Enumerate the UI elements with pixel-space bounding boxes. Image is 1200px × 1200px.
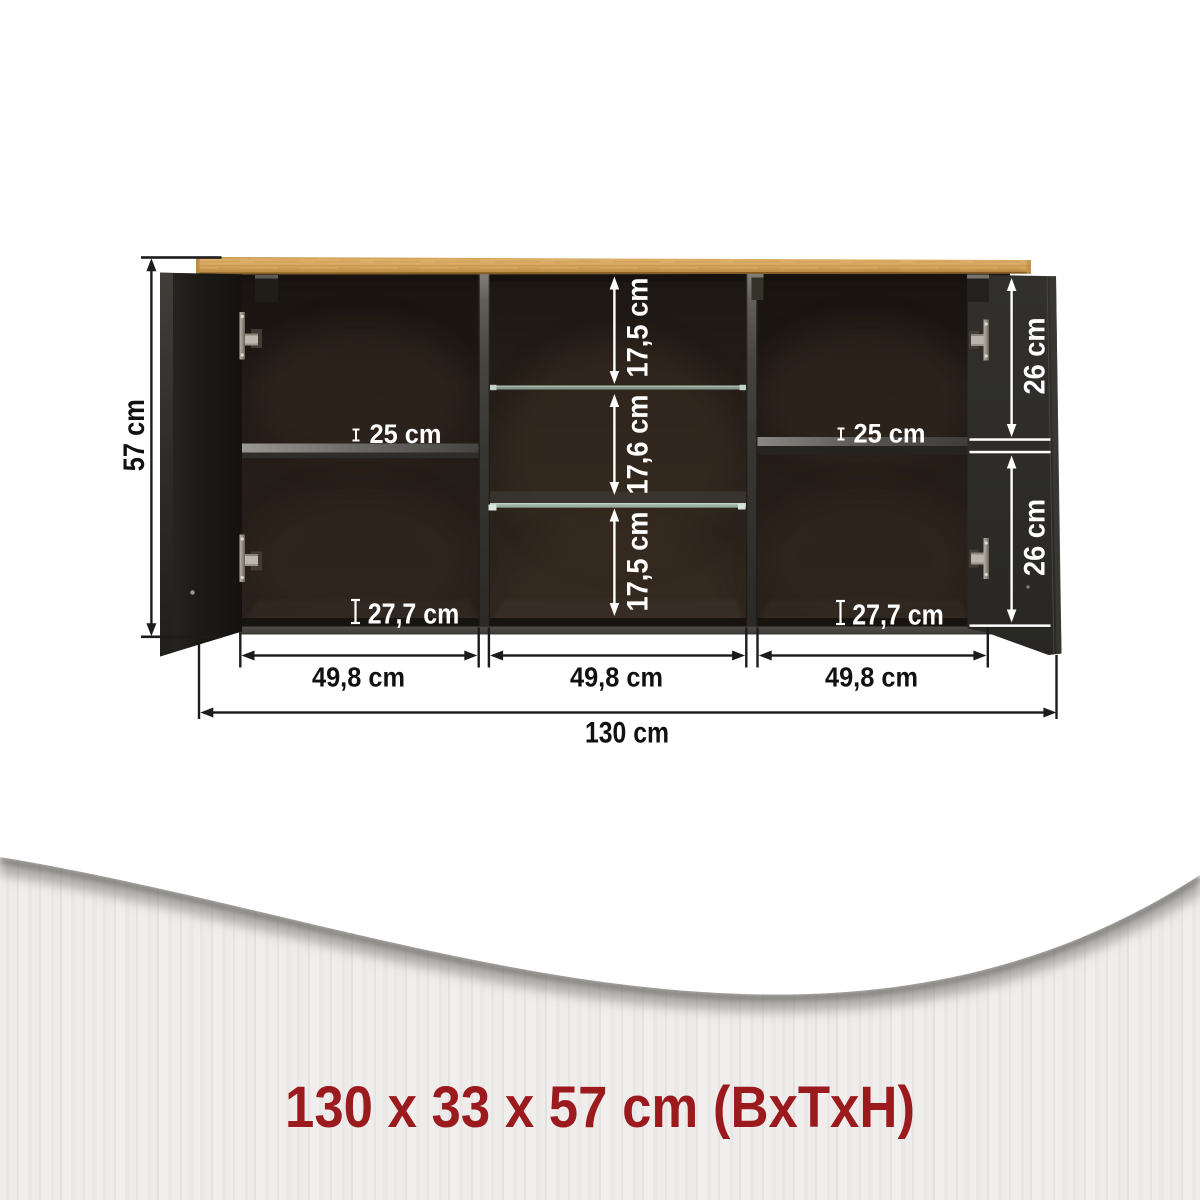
svg-text:49,8 cm: 49,8 cm: [825, 662, 918, 693]
svg-text:130 x 33 x 57 cm (BxTxH): 130 x 33 x 57 cm (BxTxH): [285, 1075, 915, 1140]
svg-text:26 cm: 26 cm: [1018, 318, 1051, 395]
svg-text:57 cm: 57 cm: [118, 399, 151, 471]
svg-text:25 cm: 25 cm: [854, 418, 926, 448]
svg-text:49,8 cm: 49,8 cm: [570, 662, 663, 693]
svg-text:49,8 cm: 49,8 cm: [312, 662, 405, 693]
svg-text:17,6 cm: 17,6 cm: [621, 395, 654, 495]
svg-text:17,5 cm: 17,5 cm: [621, 512, 654, 612]
svg-text:130 cm: 130 cm: [585, 717, 669, 750]
svg-text:26 cm: 26 cm: [1018, 499, 1051, 576]
svg-text:27,7 cm: 27,7 cm: [852, 600, 944, 632]
svg-text:17,5 cm: 17,5 cm: [621, 278, 654, 378]
svg-text:25 cm: 25 cm: [370, 419, 442, 449]
svg-text:27,7 cm: 27,7 cm: [368, 599, 460, 631]
